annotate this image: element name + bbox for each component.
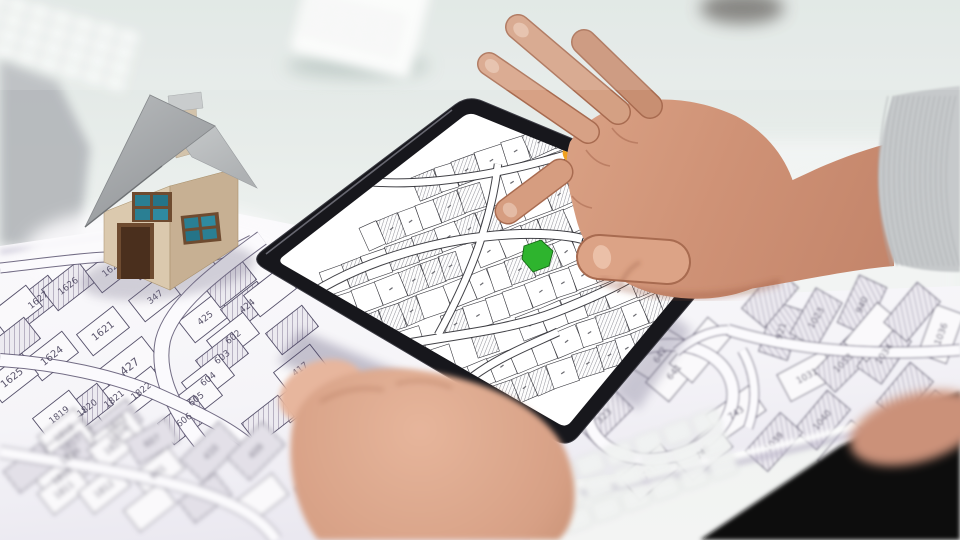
light-haze — [0, 0, 960, 90]
house-door — [117, 223, 154, 279]
window-pane — [135, 209, 150, 220]
window-pane — [202, 228, 217, 239]
window-pane — [153, 209, 168, 220]
window-pane — [201, 215, 216, 226]
window-pane — [135, 195, 150, 206]
window-pane — [153, 195, 168, 206]
window-pane — [184, 217, 199, 228]
house-window — [132, 192, 172, 222]
house-window — [181, 212, 222, 245]
sweater-sleeve — [878, 86, 960, 272]
window-pane — [185, 230, 200, 241]
photo-scene: 6426419211023940103110331034103632374310… — [0, 0, 960, 540]
door-panel — [121, 227, 150, 279]
scene-canvas: 6426419211023940103110331034103632374310… — [0, 0, 960, 540]
